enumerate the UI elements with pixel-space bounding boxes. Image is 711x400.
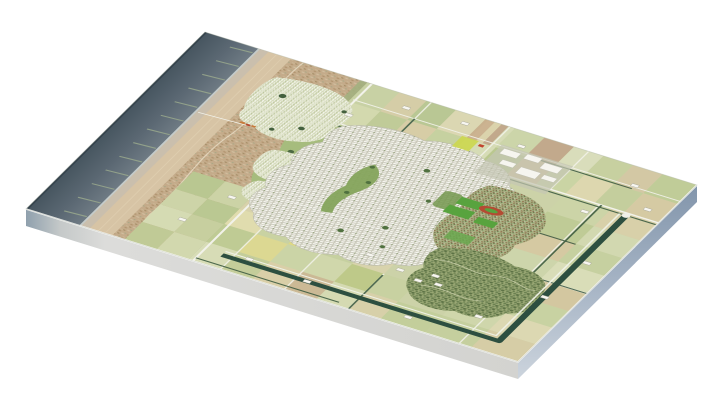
masterplan-render-canvas (0, 0, 711, 400)
masterplan-3d-map (0, 0, 711, 400)
